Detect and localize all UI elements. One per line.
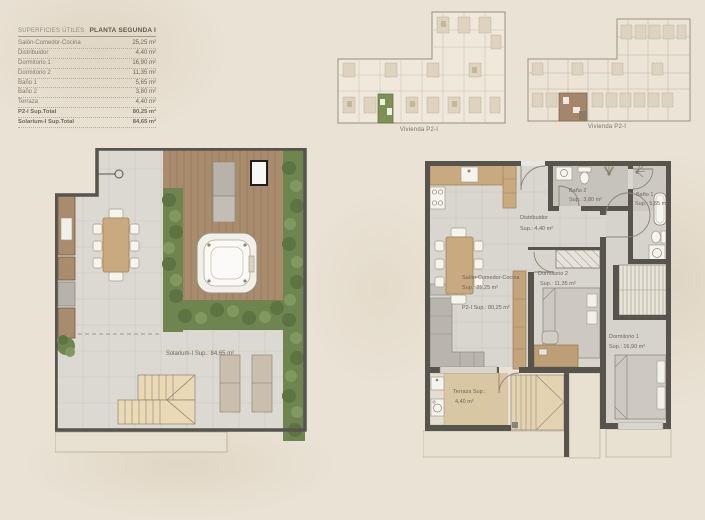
table-row: Baño 23,80 m² xyxy=(18,88,156,98)
key-plan-1: Vivienda P2-I xyxy=(331,7,507,133)
salon-label: Salón-Comedor-Cocina xyxy=(462,275,520,281)
dorm1-stairs xyxy=(613,265,666,320)
shower-tray xyxy=(649,245,665,261)
planter-boxes xyxy=(57,195,75,357)
distribuidor-label: Distribuidor xyxy=(520,215,548,221)
salon-sup: Sup.: 25,25 m² xyxy=(462,285,498,291)
table-row-total: P2-I Sup.Total80,25 m² xyxy=(18,108,156,118)
key-plan-2-drawing xyxy=(521,17,693,124)
table-row: Salón-Comedor-Cocina25,25 m² xyxy=(18,39,156,49)
key-plan-1-drawing xyxy=(331,7,507,127)
bathroom-sink xyxy=(556,167,572,180)
bano1-label: Baño 1 xyxy=(636,192,653,198)
apartment-plan: Distribuidor Sup.: 4,40 m² Baño 2 Sup.: … xyxy=(423,153,697,467)
dorm2-label: Dormitorio 2 xyxy=(538,271,568,277)
entry-door-gap xyxy=(521,161,545,166)
surface-area-table: SUPERFICIES ÚTILES PLANTA SEGUNDA I Saló… xyxy=(18,27,156,128)
bano2-label: Baño 2 xyxy=(569,188,586,194)
distribuidor-sup: Sup.: 4,40 m² xyxy=(520,226,553,232)
toilet xyxy=(652,231,667,243)
tv-cabinet xyxy=(513,271,526,369)
dorm1-bed xyxy=(615,355,666,419)
plan-sheet: { "sheet": { "table": { "title_left": "S… xyxy=(0,0,705,498)
terraza-sup: 4,40 m² xyxy=(455,399,474,405)
dorm1-sup: Sup.: 16,90 m² xyxy=(609,344,645,350)
dorm2-sup: Sup.: 11,35 m² xyxy=(540,281,576,287)
jacuzzi xyxy=(197,233,257,293)
solarium-plan-drawing: Solarium-I Sup.: 84,65 m² xyxy=(55,148,330,458)
table-header: SUPERFICIES ÚTILES PLANTA SEGUNDA I xyxy=(18,27,156,37)
roof-eave xyxy=(55,432,227,452)
kitchen-sink xyxy=(461,167,478,182)
table-row: Baño 15,65 m² xyxy=(18,79,156,89)
table-row: Distribuidor4,40 m² xyxy=(18,49,156,59)
bano2-sup: Sup.: 3,80 m² xyxy=(569,197,602,203)
dorm1-label: Dormitorio 1 xyxy=(609,334,639,340)
solarium-plan: Solarium-I Sup.: 84,65 m² xyxy=(55,148,330,458)
table-row: Dormitorio 211,35 m² xyxy=(18,69,156,79)
bano1-sup: Sup.: 5,65 m² xyxy=(635,201,668,207)
table-title: SUPERFICIES ÚTILES xyxy=(18,28,84,34)
stove xyxy=(430,187,445,209)
salon-total: P2-I Sup.: 80,25 m² xyxy=(462,305,510,311)
skylight xyxy=(251,161,267,185)
table-subtitle: PLANTA SEGUNDA I xyxy=(89,27,156,34)
table-row: Terraza4,40 m² xyxy=(18,98,156,108)
key-plan-2: Vivienda P2-I xyxy=(521,17,693,130)
table-row-total: Solarium-I Sup.Total84,65 m² xyxy=(18,118,156,128)
key-plan-1-caption: Vivienda P2-I xyxy=(331,127,507,133)
kitchen-tall-cabinet xyxy=(503,165,516,208)
table-row: Dormitorio 116,90 m² xyxy=(18,59,156,69)
dorm2-closet xyxy=(556,250,600,268)
solarium-area-label: Solarium-I Sup.: 84,65 m² xyxy=(166,351,234,357)
deck-cabinet xyxy=(213,162,235,222)
key-plan-2-caption: Vivienda P2-I xyxy=(521,124,693,130)
apartment-plan-drawing: Distribuidor Sup.: 4,40 m² Baño 2 Sup.: … xyxy=(423,153,697,467)
terraza-label: Terraza Sup.: xyxy=(453,389,486,395)
main-staircase xyxy=(511,375,564,430)
